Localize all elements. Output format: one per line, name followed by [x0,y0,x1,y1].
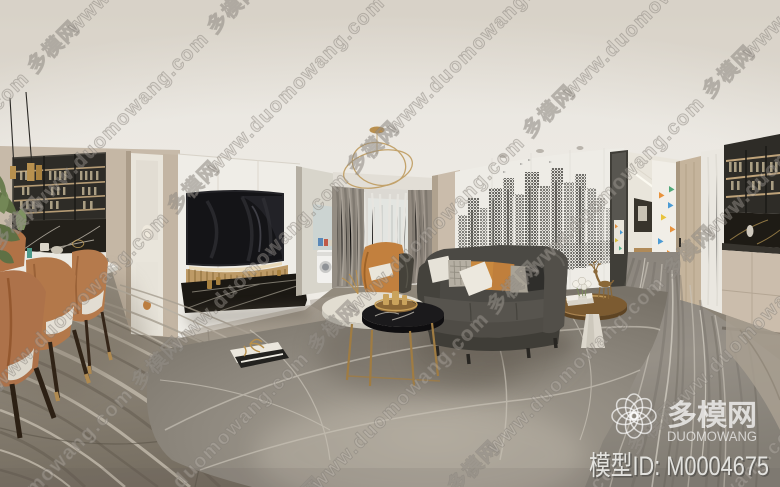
svg-text:DUOMOWANG: DUOMOWANG [667,429,757,444]
svg-text:多模网: 多模网 [667,399,757,432]
svg-text:模型ID: M0004675: 模型ID: M0004675 [589,451,769,481]
